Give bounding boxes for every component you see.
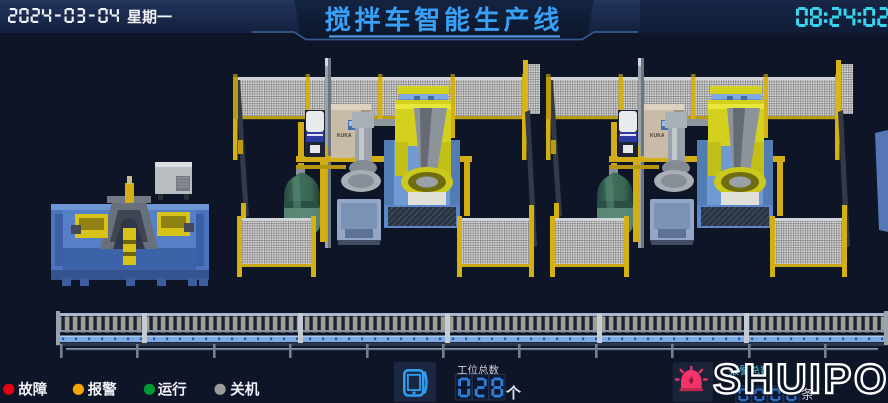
- svg-text:KUKA: KUKA: [337, 133, 352, 139]
- svg-text:运行: 运行: [158, 381, 187, 399]
- svg-text:搅拌车智能生产线: 搅拌车智能生产线: [325, 5, 563, 35]
- svg-text:关机: 关机: [230, 381, 259, 399]
- svg-text:报警: 报警: [88, 381, 117, 399]
- svg-text:个: 个: [505, 384, 522, 402]
- svg-text:星期一: 星期一: [127, 8, 172, 26]
- svg-text:故障: 故障: [18, 381, 47, 399]
- svg-text:SHUIPO: SHUIPO: [713, 355, 888, 402]
